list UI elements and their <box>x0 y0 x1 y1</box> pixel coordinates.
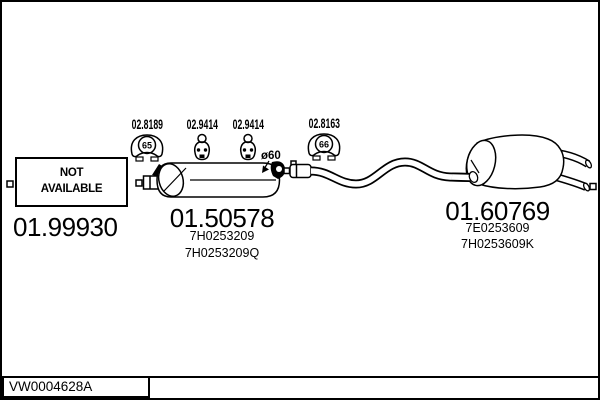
connection-marker-left <box>7 181 13 187</box>
hanger-mount-icon <box>193 133 211 163</box>
middle-muffler-oem-number: 7H0253209Q <box>157 247 287 260</box>
connection-marker-right <box>590 184 596 190</box>
mount-code-label: 02.8163 <box>308 116 339 130</box>
connection-marker-middle <box>136 180 142 186</box>
pipe-clamp-drawing <box>290 161 311 178</box>
rear-muffler-oem-number: 7E0253609 <box>432 222 563 235</box>
connecting-pipe-drawing <box>311 162 471 184</box>
mount-code-label: 02.9414 <box>186 117 217 131</box>
rear-muffler-oem-number: 7H0253609K <box>432 238 563 251</box>
mount-code-label: 02.8189 <box>131 117 162 131</box>
mount-ring-size: 65 <box>142 141 152 151</box>
pipe-diameter-label: ø60 <box>261 151 281 163</box>
drawing-reference: VW0004628A <box>9 380 92 394</box>
not-available-line1: NOT <box>60 166 83 182</box>
not-available-line2: AVAILABLE <box>41 182 102 198</box>
exhaust-parts-diagram: 02.8189 65 02.9414 02.9414 <box>0 0 600 400</box>
connection-marker-clamp <box>284 168 290 174</box>
rear-muffler-drawing <box>452 135 593 192</box>
hanger-mount-icon <box>239 133 257 163</box>
middle-muffler-oem-number: 7H0253209 <box>157 230 287 243</box>
mount-ring-size: 66 <box>319 140 329 150</box>
not-available-box: NOT AVAILABLE <box>15 157 128 207</box>
rubber-mount-ring-icon: 65 <box>128 133 166 163</box>
drawing-reference-box: VW0004628A <box>2 376 150 398</box>
rubber-mount-ring-icon: 66 <box>305 132 343 162</box>
mount-group-4: 02.8163 66 <box>294 116 354 162</box>
mount-code-label: 02.9414 <box>232 117 263 131</box>
front-section-code: 01.99930 <box>13 214 117 240</box>
middle-muffler-code: 01.50578 <box>155 205 289 231</box>
